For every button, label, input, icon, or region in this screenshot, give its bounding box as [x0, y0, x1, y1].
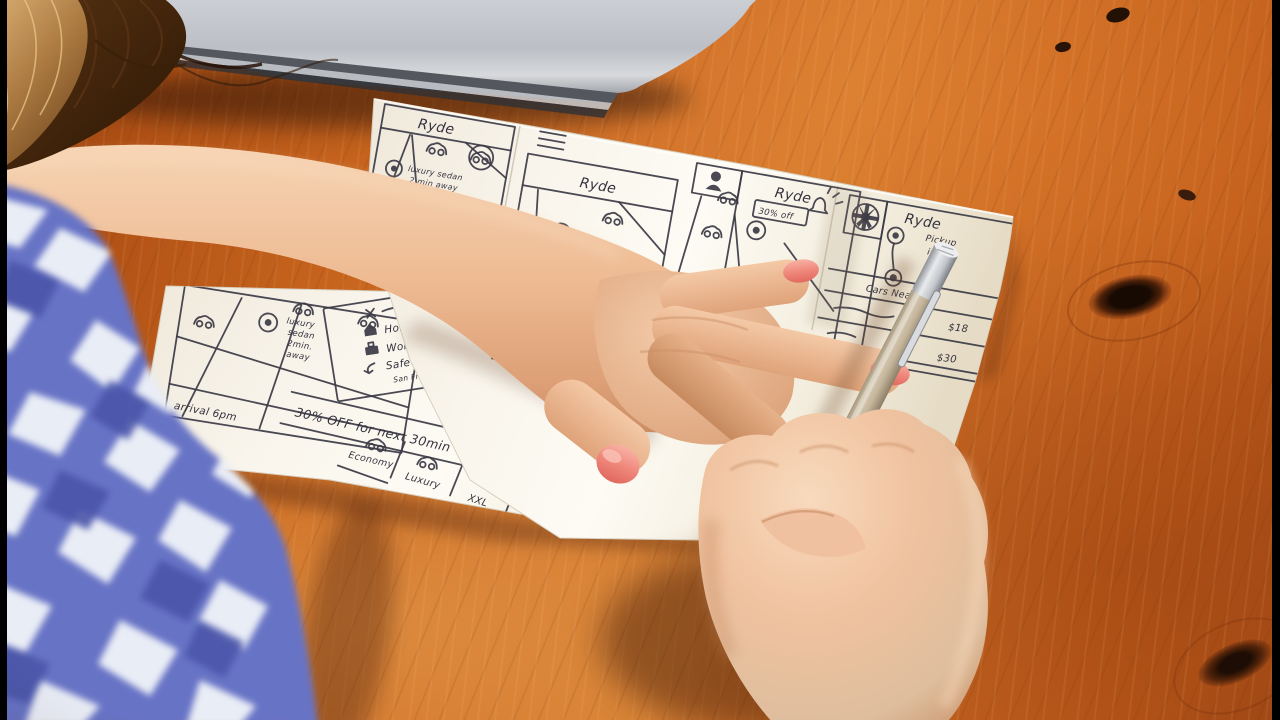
- frame4-price1: $18: [948, 322, 969, 335]
- frame4-price2: $30: [936, 353, 957, 366]
- photo-scene: luxury sedan 2min. away arrival 6pm: [0, 0, 1280, 720]
- letterbox-right: [1272, 0, 1280, 720]
- letterbox-left: [0, 0, 7, 720]
